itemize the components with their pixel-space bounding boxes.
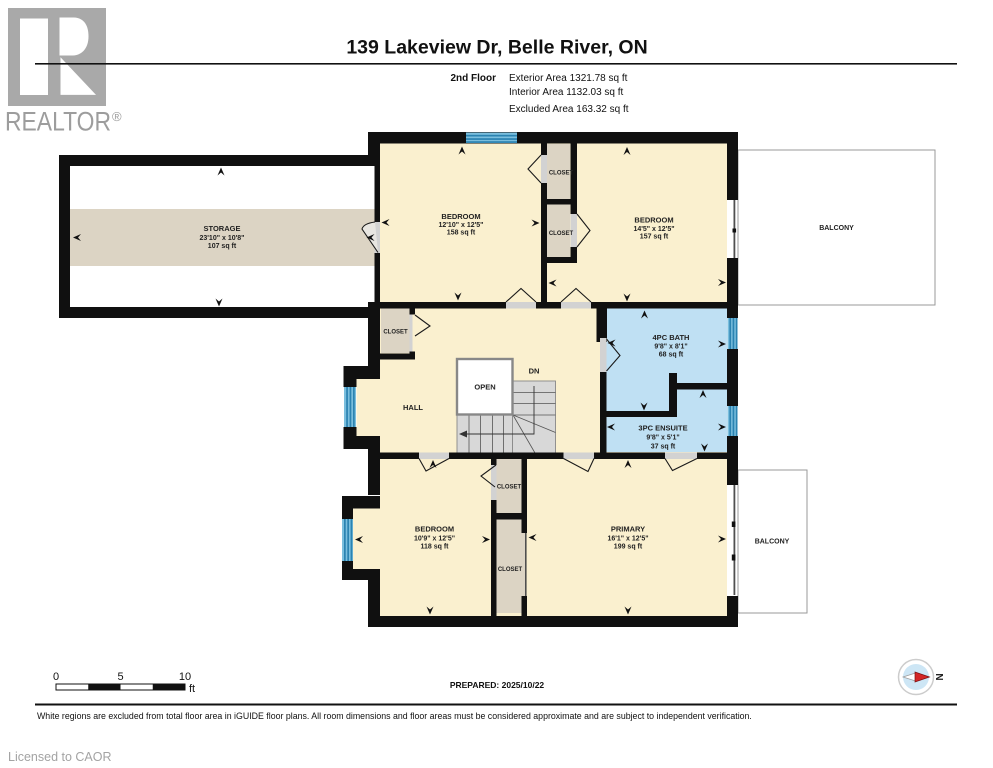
svg-text:PREPARED: 2025/10/22: PREPARED: 2025/10/22 [450, 680, 545, 690]
svg-text:CLOSET: CLOSET [383, 330, 408, 336]
svg-text:BEDROOM: BEDROOM [634, 216, 673, 225]
svg-text:®: ® [112, 109, 122, 124]
svg-text:BEDROOM: BEDROOM [441, 212, 480, 221]
svg-text:157 sq ft: 157 sq ft [640, 234, 669, 241]
svg-text:14'5" x 12'5": 14'5" x 12'5" [633, 226, 674, 233]
svg-text:2nd Floor: 2nd Floor [450, 73, 496, 84]
svg-text:BALCONY: BALCONY [819, 225, 854, 232]
svg-text:37 sq ft: 37 sq ft [651, 444, 676, 451]
svg-text:139 Lakeview Dr, Belle River,: 139 Lakeview Dr, Belle River, ON [346, 37, 647, 59]
svg-text:158 sq ft: 158 sq ft [447, 230, 476, 237]
svg-text:CLOSET: CLOSET [549, 231, 574, 237]
svg-text:BEDROOM: BEDROOM [415, 525, 454, 534]
svg-text:BALCONY: BALCONY [755, 539, 790, 546]
svg-text:0: 0 [53, 671, 59, 683]
svg-text:ft: ft [189, 683, 195, 695]
svg-text:4PC BATH: 4PC BATH [653, 333, 690, 342]
svg-text:White regions are excluded fro: White regions are excluded from total fl… [37, 711, 752, 721]
svg-text:REALTOR: REALTOR [5, 107, 111, 137]
svg-text:PRIMARY: PRIMARY [611, 525, 645, 534]
svg-text:10: 10 [179, 671, 191, 683]
svg-text:23'10" x 10'8": 23'10" x 10'8" [199, 235, 244, 242]
svg-text:107 sq ft: 107 sq ft [208, 243, 237, 250]
svg-text:CLOSET: CLOSET [549, 171, 574, 177]
svg-text:HALL: HALL [403, 403, 423, 412]
svg-text:9'8" x 8'1": 9'8" x 8'1" [654, 344, 687, 351]
svg-text:N: N [933, 673, 944, 680]
svg-text:5: 5 [117, 671, 123, 683]
svg-text:199 sq ft: 199 sq ft [614, 544, 643, 551]
svg-text:3PC ENSUITE: 3PC ENSUITE [638, 424, 687, 433]
svg-text:Licensed to CAOR: Licensed to CAOR [8, 750, 112, 764]
svg-text:12'10" x 12'5": 12'10" x 12'5" [438, 222, 483, 229]
svg-text:CLOSET: CLOSET [497, 485, 522, 491]
svg-text:16'1" x 12'5": 16'1" x 12'5" [607, 536, 648, 543]
svg-text:118 sq ft: 118 sq ft [420, 544, 449, 551]
svg-text:10'9" x 12'5": 10'9" x 12'5" [414, 536, 455, 543]
svg-text:9'8" x 5'1": 9'8" x 5'1" [646, 435, 679, 442]
svg-text:CLOSET: CLOSET [498, 567, 523, 573]
svg-text:Excluded Area 163.32 sq ft: Excluded Area 163.32 sq ft [509, 104, 629, 115]
svg-text:STORAGE: STORAGE [204, 224, 241, 233]
svg-text:68 sq ft: 68 sq ft [659, 352, 684, 359]
svg-text:Interior Area 1132.03 sq ft: Interior Area 1132.03 sq ft [509, 87, 624, 98]
svg-text:DN: DN [529, 367, 540, 376]
svg-text:Exterior Area 1321.78 sq ft: Exterior Area 1321.78 sq ft [509, 73, 628, 84]
svg-text:OPEN: OPEN [474, 383, 495, 392]
